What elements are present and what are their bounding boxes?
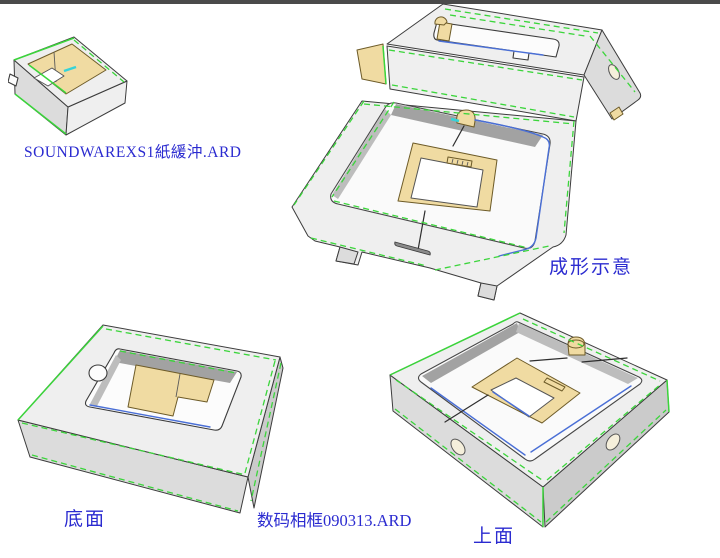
caption-design1-filename: SOUNDWAREXS1紙緩沖.ARD — [24, 144, 241, 161]
caption-formed-view: 成形示意 — [549, 258, 633, 279]
tray1-loop-tab — [89, 365, 107, 381]
caption-top-face-view: 上面 — [473, 527, 515, 548]
caption-design2-filename: 数码相框090313.ARD — [257, 512, 411, 530]
bottom-face-render — [10, 305, 300, 520]
thumbnail-3d-render — [8, 30, 134, 144]
top-face-render — [383, 300, 687, 546]
assembly-left-kraft-flap — [357, 44, 386, 84]
caption-bottom-face-view: 底面 — [64, 510, 106, 531]
assembly-leg-shade-right — [478, 283, 497, 300]
cad-document-page: SOUNDWAREXS1紙緩沖.ARD 成形示意 底面 数码相框090313.A… — [0, 0, 720, 558]
